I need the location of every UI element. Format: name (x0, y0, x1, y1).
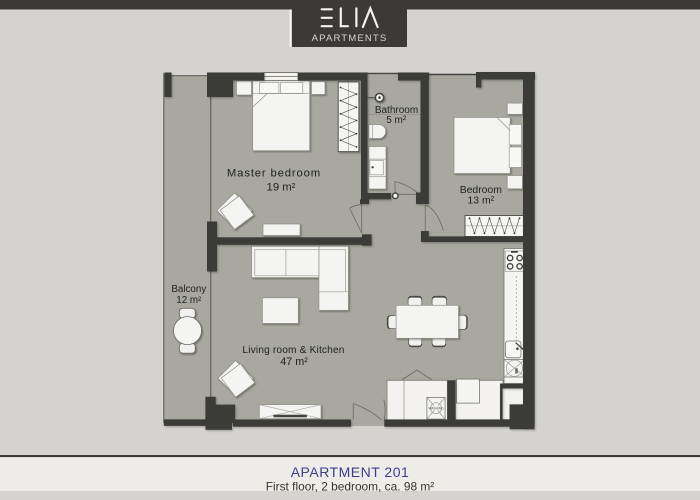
svg-text:Master bedroom: Master bedroom (227, 168, 321, 180)
svg-text:WASHING: WASHING (428, 407, 444, 411)
svg-text:5 m²: 5 m² (386, 115, 407, 126)
svg-text:Bedroom: Bedroom (460, 185, 502, 196)
svg-text:APARTMENTS: APARTMENTS (312, 33, 388, 44)
svg-text:First floor, 2 bedroom, ca. 98: First floor, 2 bedroom, ca. 98 m² (266, 480, 435, 494)
svg-text:Living room & Kitchen: Living room & Kitchen (242, 345, 344, 356)
svg-text:13 m²: 13 m² (468, 196, 495, 207)
svg-text:Bathroom: Bathroom (375, 105, 418, 116)
svg-text:12 m²: 12 m² (176, 295, 202, 306)
svg-text:APARTMENT 201: APARTMENT 201 (291, 464, 410, 480)
svg-text:Balcony: Balcony (171, 284, 206, 295)
svg-text:19 m²: 19 m² (267, 182, 296, 194)
svg-text:47 m²: 47 m² (280, 356, 308, 368)
